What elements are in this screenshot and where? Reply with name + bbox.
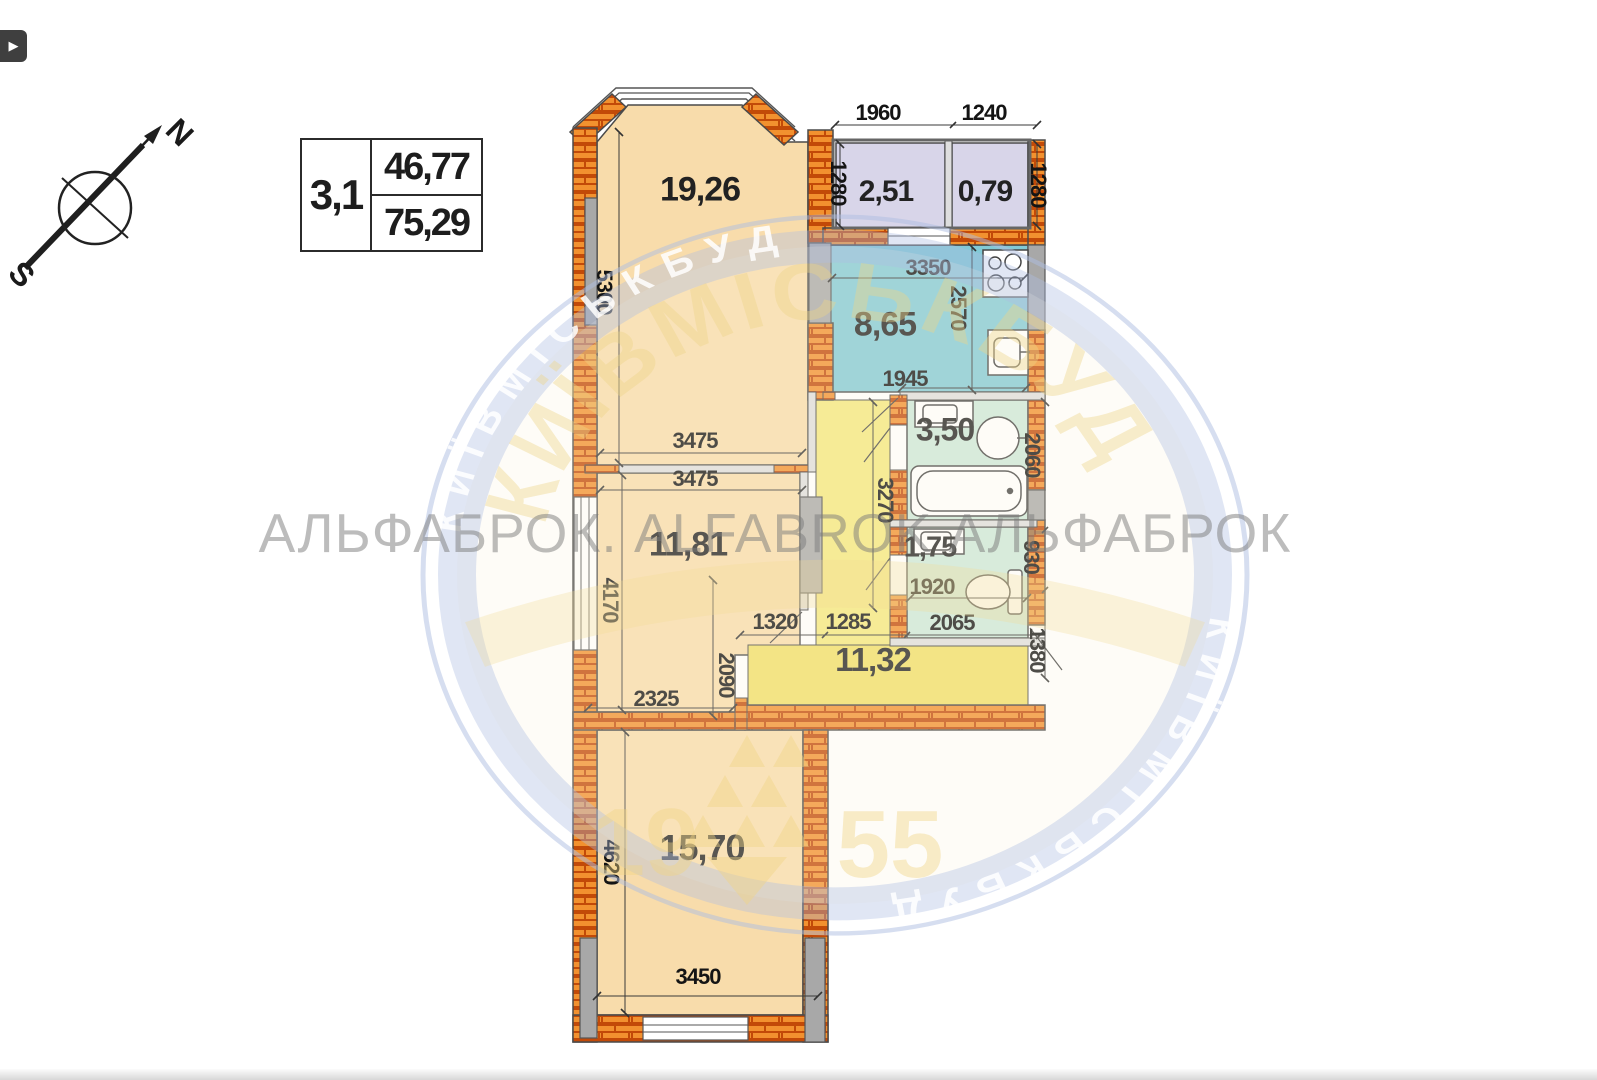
unit-info-box: 3,1 46,77 75,29 (300, 138, 483, 252)
play-icon: ▶ (9, 38, 19, 54)
dim-2325: 2325 (634, 686, 679, 712)
floor-plan: 19,26 2,51 0,79 8,65 3,50 1,75 11,81 11,… (540, 80, 1085, 1055)
dim-1380: 1380 (1024, 628, 1050, 673)
dim-3475-b: 3475 (673, 466, 718, 492)
compass: N S (0, 100, 210, 310)
area-label-bedroom2: 15,70 (659, 827, 744, 869)
dim-1320: 1320 (753, 609, 798, 635)
play-button[interactable]: ▶ (0, 30, 27, 62)
area-label-kitchen: 8,65 (854, 306, 916, 345)
area-label-loggia-right: 0,79 (958, 175, 1012, 209)
area-label-wc: 1,75 (904, 532, 956, 565)
dim-3270: 3270 (872, 478, 898, 523)
dim-1920: 1920 (910, 574, 955, 600)
dim-1960: 1960 (856, 100, 901, 126)
dim-4620: 4620 (598, 840, 624, 885)
dim-1280-right: 1280 (1025, 163, 1051, 208)
unit-number: 3,1 (302, 140, 372, 250)
bath-sink-icon (977, 417, 1019, 459)
area-label-hallway: 11,32 (835, 641, 911, 679)
dim-2060: 2060 (1019, 433, 1045, 478)
dim-1280-left: 1280 (825, 161, 851, 206)
dim-3450: 3450 (676, 964, 721, 990)
dim-2570: 2570 (945, 286, 971, 331)
floor-plan-drawing (540, 80, 1085, 1055)
living-area-value: 46,77 (372, 140, 481, 196)
dim-930: 930 (1018, 540, 1044, 574)
total-area-value: 75,29 (372, 196, 481, 250)
dim-5300: 5300 (591, 270, 617, 315)
bottom-edge-bar (0, 1069, 1597, 1080)
dim-2065: 2065 (930, 610, 975, 636)
dim-2090: 2090 (713, 653, 739, 698)
dim-1285: 1285 (826, 609, 871, 635)
dim-3475-a: 3475 (673, 428, 718, 454)
floorplan-viewer-page: ▶ N S 3,1 46,77 75,29 (0, 0, 1597, 1080)
room-living (597, 105, 808, 465)
dim-4170: 4170 (597, 578, 623, 623)
stove-icon (983, 250, 1028, 297)
dim-3350: 3350 (906, 255, 951, 281)
area-label-bathroom: 3,50 (916, 412, 974, 449)
toilet-icon (966, 575, 1010, 609)
area-label-living: 19,26 (660, 171, 740, 210)
area-label-loggia-left: 2,51 (859, 175, 913, 209)
dim-1945: 1945 (883, 366, 928, 392)
dim-1240: 1240 (962, 100, 1007, 126)
north-label: N (159, 111, 201, 153)
area-label-bedroom: 11,81 (649, 526, 727, 565)
